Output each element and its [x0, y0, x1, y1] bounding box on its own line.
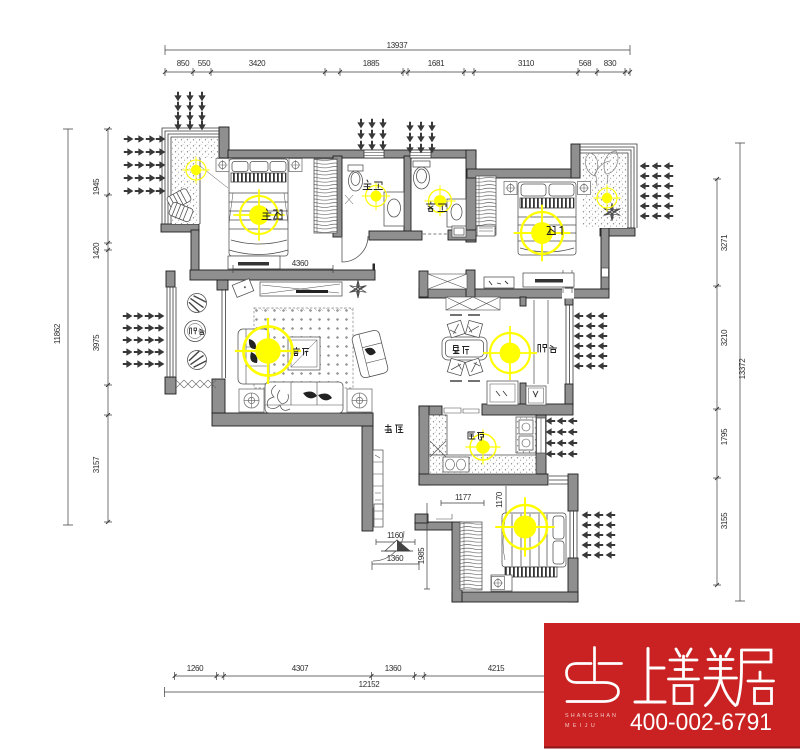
- svg-text:568: 568: [579, 59, 592, 68]
- svg-text:4307: 4307: [292, 664, 309, 673]
- svg-text:850: 850: [177, 59, 190, 68]
- svg-text:3110: 3110: [518, 59, 535, 68]
- svg-text:1160: 1160: [387, 531, 404, 540]
- svg-text:1260: 1260: [187, 664, 204, 673]
- svg-text:1795: 1795: [720, 428, 729, 445]
- svg-text:12152: 12152: [359, 680, 381, 689]
- svg-text:4360: 4360: [292, 259, 309, 268]
- svg-text:1681: 1681: [428, 59, 445, 68]
- svg-text:1945: 1945: [92, 178, 101, 195]
- svg-text:1885: 1885: [363, 59, 380, 68]
- svg-text:550: 550: [198, 59, 211, 68]
- svg-text:3155: 3155: [720, 512, 729, 529]
- svg-text:400-002-6791: 400-002-6791: [630, 709, 772, 736]
- svg-text:1177: 1177: [455, 493, 472, 502]
- svg-text:3975: 3975: [92, 334, 101, 351]
- svg-text:4215: 4215: [488, 664, 505, 673]
- svg-text:SHANGSHAN: SHANGSHAN: [565, 713, 618, 719]
- svg-text:830: 830: [604, 59, 617, 68]
- svg-text:1170: 1170: [495, 491, 504, 508]
- svg-text:1985: 1985: [417, 547, 426, 564]
- svg-text:1420: 1420: [92, 242, 101, 259]
- svg-text:13937: 13937: [387, 41, 409, 50]
- svg-text:13372: 13372: [738, 358, 747, 380]
- svg-text:3157: 3157: [92, 456, 101, 473]
- svg-text:3271: 3271: [720, 234, 729, 251]
- svg-text:3210: 3210: [720, 329, 729, 346]
- svg-text:1360: 1360: [387, 554, 404, 563]
- svg-text:MEIJU: MEIJU: [565, 723, 598, 729]
- svg-text:3420: 3420: [249, 59, 266, 68]
- svg-text:1360: 1360: [385, 664, 402, 673]
- svg-text:11862: 11862: [53, 323, 62, 344]
